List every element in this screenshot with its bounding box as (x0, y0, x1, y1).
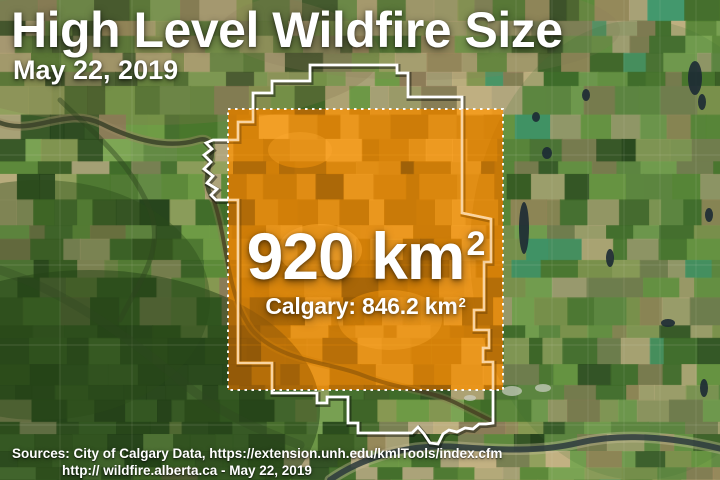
sources-footer: Sources: City of Calgary Data, https://e… (12, 446, 502, 479)
wildfire-infographic: High Level Wildfire Size May 22, 2019 92… (0, 0, 720, 480)
date-subtitle: May 22, 2019 (13, 57, 178, 84)
fire-area-exponent: 2 (466, 228, 484, 261)
fire-stat-block: 920 km2 Calgary: 846.2 km2 (228, 224, 503, 318)
page-title: High Level Wildfire Size (11, 5, 563, 55)
calgary-comparison-text: Calgary: 846.2 km (265, 293, 457, 319)
source-line-2: http:// wildfire.alberta.ca - May 22, 20… (62, 463, 502, 480)
calgary-comparison: Calgary: 846.2 km2 (228, 295, 503, 318)
source-line-1: Sources: City of Calgary Data, https://e… (12, 446, 502, 463)
fire-area-text: 920 km (247, 219, 465, 293)
calgary-comparison-exponent: 2 (459, 296, 466, 309)
fire-area-value: 920 km2 (228, 224, 503, 289)
